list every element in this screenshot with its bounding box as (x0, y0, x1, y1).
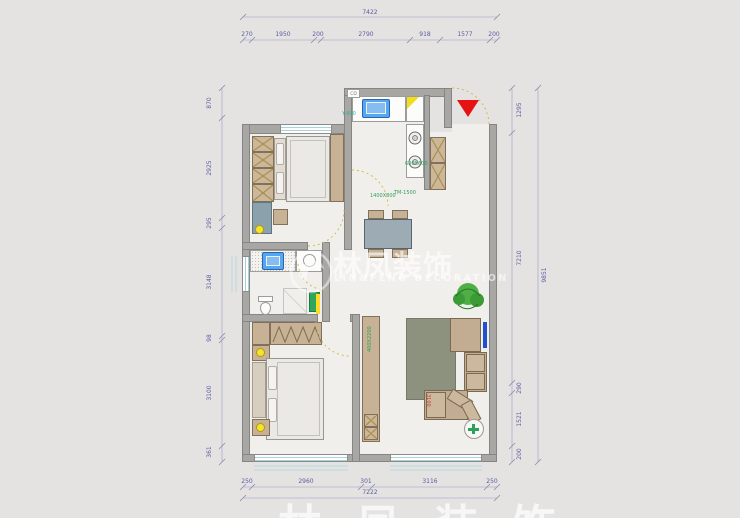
dim-top-seg: 918 (410, 32, 440, 38)
dim-bottom-seg: 250 (232, 479, 262, 485)
dim-top-seg: 270 (232, 32, 262, 38)
dim-left-seg: 361 (207, 432, 213, 472)
dim-right-seg: 1521 (517, 399, 523, 439)
watermark-brand-en: LIN&FENG DECORATION (334, 273, 509, 284)
dim-left-seg: 870 (207, 83, 213, 123)
watermark-brand-bottom: 林凤装饰 (278, 490, 590, 518)
dim-left-seg: 295 (207, 203, 213, 243)
dim-left-seg: 3148 (207, 262, 213, 302)
dim-left-seg: 2925 (207, 148, 213, 188)
dim-left-seg: 3100 (207, 373, 213, 413)
dim-top-seg: 1577 (450, 32, 480, 38)
dim-right-seg: 200 (517, 434, 523, 474)
dim-top-seg: 200 (303, 32, 333, 38)
brand-logo-icon (287, 245, 335, 297)
dim-bottom-seg: 2960 (291, 479, 321, 485)
dim-bottom-seg: 250 (477, 479, 507, 485)
dim-right-seg: 1295 (517, 90, 523, 130)
dim-top-seg: 200 (479, 32, 509, 38)
dim-left-seg: 98 (207, 318, 213, 358)
dim-top-total: 7422 (355, 10, 385, 16)
dim-top-seg: 2790 (351, 32, 381, 38)
floorplan-canvas: CD 600X600 Y-900 TM-1500 1400X800 400X22… (0, 0, 740, 518)
dim-right-seg: 7210 (517, 238, 523, 278)
dim-right-total: 9851 (542, 255, 548, 295)
dim-bottom-seg: 3116 (415, 479, 445, 485)
dim-top-seg: 1950 (268, 32, 298, 38)
dim-bottom-seg: 301 (351, 479, 381, 485)
